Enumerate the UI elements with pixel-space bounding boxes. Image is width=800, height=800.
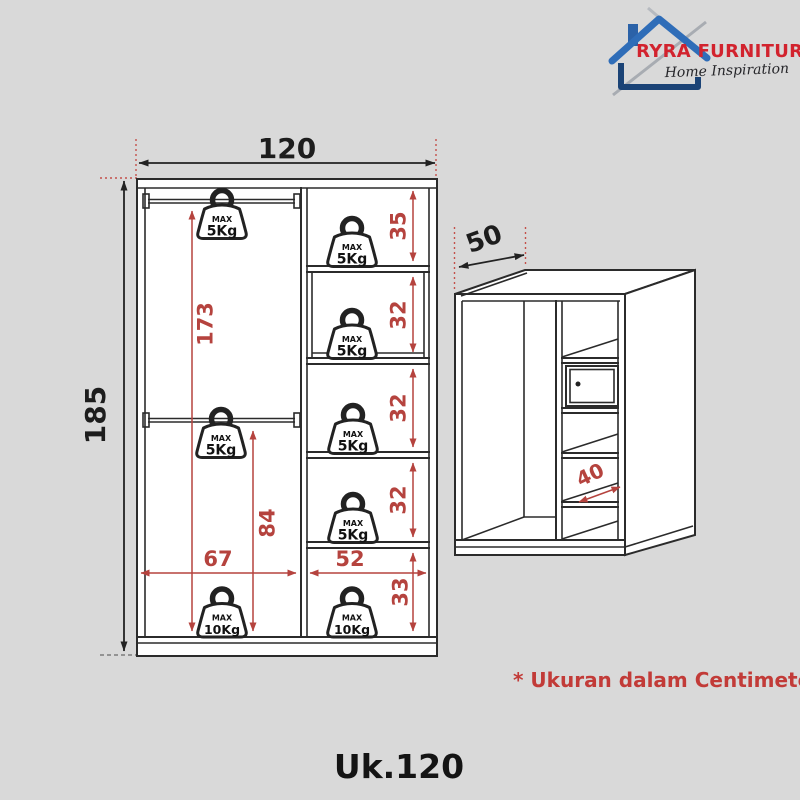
compartment-2-label: 32 [386, 300, 410, 329]
weight-value-label: 5Kg [338, 439, 369, 455]
weight-value-label: 5Kg [337, 252, 368, 268]
overall-width-label: 120 [258, 132, 316, 165]
dimension-overall-height: 185 [79, 181, 124, 651]
size-caption: Uk.120 [334, 747, 464, 786]
weight-value-label: 10Kg [204, 622, 240, 637]
compartment-4-label: 32 [386, 485, 410, 514]
side-view-3d: 50 40 [455, 219, 696, 555]
wardrobe-diagram: RYRA FURNITURE Home Inspiration 120 185 [0, 0, 800, 800]
weight-value-label: 5Kg [338, 528, 369, 544]
dimension-overall-width: 120 [139, 132, 435, 165]
weight-value-label: 5Kg [337, 344, 368, 360]
depth-label: 50 [462, 219, 506, 260]
compartment-1-label: 35 [386, 211, 410, 240]
diagram-canvas: RYRA FURNITURE Home Inspiration 120 185 [0, 0, 800, 800]
right-section-width-label: 52 [335, 547, 364, 571]
compartment-5-label: 33 [388, 577, 412, 606]
overall-height-label: 185 [79, 386, 112, 444]
brand-tagline: Home Inspiration [663, 61, 789, 81]
weight-value-label: 5Kg [206, 443, 237, 459]
door-knob [576, 382, 581, 387]
compartment-3-label: 32 [386, 393, 410, 422]
brand-name: RYRA FURNITURE [636, 41, 800, 62]
weight-value-label: 10Kg [334, 622, 370, 637]
front-view: 120 185 [79, 132, 437, 656]
rod-to-floor-label: 173 [193, 302, 217, 346]
logo: RYRA FURNITURE Home Inspiration [612, 8, 800, 95]
mid-rod-to-floor-label: 84 [255, 508, 279, 537]
units-note: * Ukuran dalam Centimeter [513, 668, 800, 692]
left-section-width-label: 67 [203, 547, 232, 571]
weight-value-label: 5Kg [207, 224, 238, 240]
